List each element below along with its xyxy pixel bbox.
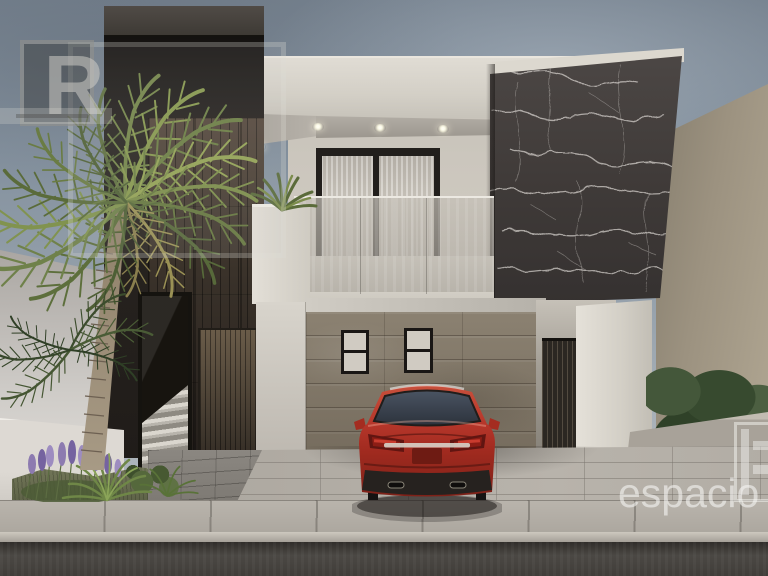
red-sedan-car [352, 372, 502, 522]
glass-joint [426, 198, 427, 294]
balcony-glass-railing [294, 196, 494, 292]
palm-lower-cluster [0, 280, 154, 415]
street-asphalt [0, 542, 768, 576]
palm-tree [0, 30, 300, 500]
carport-window-right [404, 328, 433, 373]
downlight-icon [437, 125, 449, 133]
marble-feature-wall [488, 52, 684, 304]
downlight-icon [312, 123, 324, 131]
glass-joint [360, 198, 361, 294]
carport-window-left [341, 330, 369, 374]
palm-crown [0, 65, 261, 322]
downlight-icon [374, 124, 386, 132]
architectural-rendering: R espacio [0, 0, 768, 576]
marble-texture [488, 52, 684, 304]
